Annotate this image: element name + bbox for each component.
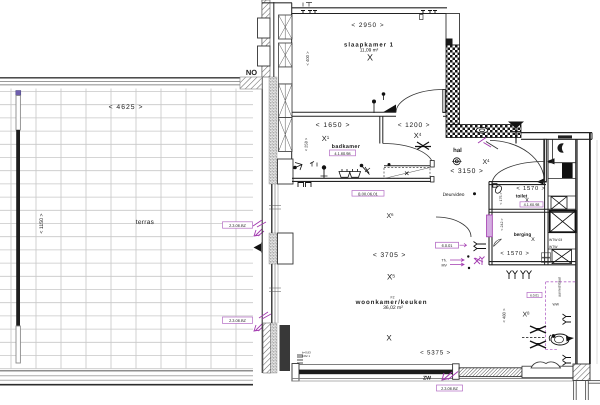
svg-text:hal: hal xyxy=(453,147,462,154)
svg-text:Deurvideo: Deurvideo xyxy=(443,192,465,198)
svg-text:< 3150 >: < 3150 > xyxy=(450,168,483,175)
svg-text:badkamer: badkamer xyxy=(332,144,361,150)
svg-text:WW: WW xyxy=(553,303,560,307)
svg-text:< 175 >: < 175 > xyxy=(499,192,503,204)
svg-text:4.1.60.98: 4.1.60.98 xyxy=(334,151,350,156)
svg-text:< 258 >: < 258 > xyxy=(304,137,309,151)
svg-text:< 242 >: < 242 > xyxy=(500,218,504,230)
svg-text:< 400 >: < 400 > xyxy=(305,51,310,66)
svg-text:2.3.06.BZ: 2.3.06.BZ xyxy=(229,318,246,323)
svg-text:8.00.06.01: 8.00.06.01 xyxy=(358,191,378,196)
svg-text:< 1570 >: < 1570 > xyxy=(516,185,545,192)
svg-text:< 1650 >: < 1650 > xyxy=(316,122,351,129)
svg-text:36,02 m²: 36,02 m² xyxy=(383,305,403,311)
svg-text:NO: NO xyxy=(246,68,257,77)
svg-text:ZW: ZW xyxy=(423,376,431,382)
svg-text:< 1200 >: < 1200 > xyxy=(398,122,430,129)
svg-text:2.3.06.BZ: 2.3.06.BZ xyxy=(229,223,246,228)
svg-text:X: X xyxy=(367,53,373,63)
svg-text:WTW 03: WTW 03 xyxy=(549,238,562,242)
svg-text:< 480 >: < 480 > xyxy=(502,308,507,323)
svg-text:slaapkamer 1: slaapkamer 1 xyxy=(344,42,394,49)
svg-text:< 3705 >: < 3705 > xyxy=(373,252,406,259)
svg-text:X: X xyxy=(386,334,392,343)
svg-text:< 5375 >: < 5375 > xyxy=(420,350,451,357)
svg-text:WTW: WTW xyxy=(549,245,558,249)
svg-text:< 4625 >: < 4625 > xyxy=(109,104,144,111)
svg-text:6.0.01: 6.0.01 xyxy=(530,294,539,298)
svg-text:KOZ 1: KOZ 1 xyxy=(302,354,311,358)
svg-text:4.1.60.98: 4.1.60.98 xyxy=(524,203,540,207)
svg-text:MV: MV xyxy=(442,263,448,267)
svg-text:2.3.06.BZ: 2.3.06.BZ xyxy=(441,386,458,391)
svg-text:< 2950 >: < 2950 > xyxy=(351,22,384,29)
svg-text:< 1150 >: < 1150 > xyxy=(39,213,45,233)
svg-text:Th.: Th. xyxy=(442,259,447,263)
svg-text:< 1570 >: < 1570 > xyxy=(500,250,529,257)
svg-text:berging: berging xyxy=(514,232,532,238)
svg-text:6.0.01: 6.0.01 xyxy=(442,243,453,248)
svg-text:aanrechtblad: aanrechtblad xyxy=(558,277,562,297)
svg-text:X: X xyxy=(531,237,535,243)
svg-text:terras: terras xyxy=(136,219,155,226)
